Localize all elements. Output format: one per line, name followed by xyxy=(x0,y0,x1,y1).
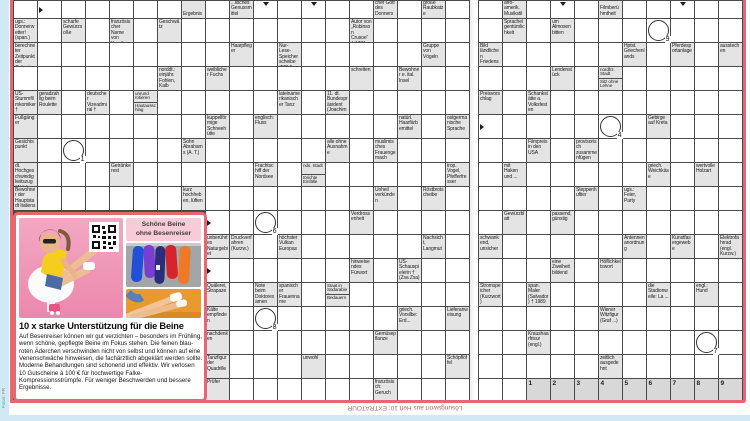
answer-cell[interactable] xyxy=(422,355,445,378)
answer-cell[interactable] xyxy=(527,259,550,282)
answer-cell[interactable] xyxy=(302,259,325,282)
answer-cell[interactable] xyxy=(647,187,670,210)
answer-cell[interactable] xyxy=(374,283,397,306)
answer-cell[interactable] xyxy=(446,67,469,90)
answer-cell[interactable] xyxy=(398,43,421,66)
answer-cell[interactable] xyxy=(254,19,277,42)
answer-cell[interactable] xyxy=(422,259,445,282)
answer-cell[interactable] xyxy=(374,307,397,330)
answer-cell[interactable] xyxy=(278,355,301,378)
answer-cell[interactable] xyxy=(671,331,694,354)
answer-cell[interactable] xyxy=(278,211,301,234)
answer-cell[interactable] xyxy=(446,331,469,354)
answer-cell[interactable] xyxy=(551,187,574,210)
answer-cell[interactable] xyxy=(695,1,718,18)
answer-cell[interactable] xyxy=(479,115,502,138)
answer-cell[interactable] xyxy=(695,259,718,282)
answer-cell[interactable] xyxy=(158,163,181,186)
answer-cell[interactable] xyxy=(695,211,718,234)
answer-cell[interactable] xyxy=(350,163,373,186)
answer-cell[interactable] xyxy=(623,331,646,354)
answer-cell[interactable] xyxy=(551,43,574,66)
answer-cell[interactable] xyxy=(719,67,742,90)
answer-cell[interactable] xyxy=(647,259,670,282)
answer-cell[interactable] xyxy=(527,115,550,138)
solution-letter-cell[interactable]: 9 xyxy=(719,379,742,402)
answer-cell[interactable] xyxy=(302,307,325,330)
answer-cell[interactable]: 1 xyxy=(62,139,85,162)
answer-cell[interactable] xyxy=(374,259,397,282)
answer-cell[interactable] xyxy=(278,67,301,90)
answer-cell[interactable] xyxy=(719,115,742,138)
answer-cell[interactable] xyxy=(479,163,502,186)
answer-cell[interactable] xyxy=(446,379,469,402)
answer-cell[interactable] xyxy=(623,163,646,186)
answer-cell[interactable] xyxy=(695,355,718,378)
answer-cell[interactable] xyxy=(446,1,469,18)
answer-cell[interactable] xyxy=(86,163,109,186)
answer-cell[interactable] xyxy=(230,19,253,42)
answer-cell[interactable] xyxy=(527,235,550,258)
answer-cell[interactable] xyxy=(599,331,622,354)
answer-cell[interactable] xyxy=(374,19,397,42)
answer-cell[interactable] xyxy=(278,331,301,354)
answer-cell[interactable] xyxy=(719,19,742,42)
answer-cell[interactable] xyxy=(182,19,205,42)
answer-cell[interactable] xyxy=(326,355,349,378)
answer-cell[interactable] xyxy=(398,235,421,258)
answer-cell[interactable] xyxy=(158,139,181,162)
answer-cell[interactable] xyxy=(446,211,469,234)
answer-cell[interactable] xyxy=(254,139,277,162)
answer-cell[interactable] xyxy=(278,139,301,162)
answer-cell[interactable] xyxy=(623,307,646,330)
solution-letter-cell[interactable]: 7 xyxy=(671,379,694,402)
answer-cell[interactable] xyxy=(134,1,157,18)
answer-cell[interactable] xyxy=(254,355,277,378)
answer-cell[interactable] xyxy=(623,1,646,18)
answer-cell[interactable] xyxy=(599,43,622,66)
answer-cell[interactable] xyxy=(551,139,574,162)
answer-cell[interactable] xyxy=(599,139,622,162)
answer-cell[interactable] xyxy=(398,331,421,354)
answer-cell[interactable] xyxy=(86,187,109,210)
answer-cell[interactable] xyxy=(575,331,598,354)
answer-cell[interactable] xyxy=(302,115,325,138)
answer-cell[interactable] xyxy=(254,331,277,354)
answer-cell[interactable] xyxy=(719,283,742,306)
answer-cell[interactable] xyxy=(719,139,742,162)
answer-cell[interactable] xyxy=(62,187,85,210)
answer-cell[interactable] xyxy=(647,235,670,258)
answer-cell[interactable] xyxy=(479,67,502,90)
answer-cell[interactable] xyxy=(575,307,598,330)
answer-cell[interactable] xyxy=(86,67,109,90)
answer-cell[interactable] xyxy=(551,331,574,354)
answer-cell[interactable] xyxy=(350,139,373,162)
answer-cell[interactable] xyxy=(398,355,421,378)
answer-cell[interactable] xyxy=(230,307,253,330)
answer-cell[interactable] xyxy=(158,43,181,66)
answer-cell[interactable] xyxy=(182,91,205,114)
answer-cell[interactable] xyxy=(110,67,133,90)
answer-cell[interactable] xyxy=(623,19,646,42)
answer-cell[interactable] xyxy=(695,139,718,162)
answer-cell[interactable] xyxy=(182,43,205,66)
answer-cell[interactable] xyxy=(134,139,157,162)
answer-cell[interactable] xyxy=(647,91,670,114)
answer-cell[interactable] xyxy=(623,139,646,162)
answer-cell[interactable] xyxy=(719,163,742,186)
answer-cell[interactable] xyxy=(671,307,694,330)
answer-cell[interactable] xyxy=(254,187,277,210)
answer-cell[interactable] xyxy=(398,163,421,186)
answer-cell[interactable] xyxy=(671,67,694,90)
answer-cell[interactable] xyxy=(62,67,85,90)
answer-cell[interactable] xyxy=(230,67,253,90)
answer-cell[interactable] xyxy=(599,91,622,114)
answer-cell[interactable] xyxy=(110,187,133,210)
answer-cell[interactable] xyxy=(398,379,421,402)
answer-cell[interactable] xyxy=(374,211,397,234)
answer-cell[interactable] xyxy=(302,67,325,90)
answer-cell[interactable] xyxy=(479,211,502,234)
answer-cell[interactable] xyxy=(422,211,445,234)
answer-cell[interactable] xyxy=(671,355,694,378)
answer-cell[interactable] xyxy=(158,91,181,114)
answer-cell[interactable] xyxy=(86,43,109,66)
answer-cell[interactable] xyxy=(422,283,445,306)
answer-cell[interactable] xyxy=(575,91,598,114)
answer-cell[interactable] xyxy=(302,19,325,42)
answer-cell[interactable] xyxy=(110,115,133,138)
answer-cell[interactable] xyxy=(599,163,622,186)
answer-cell[interactable] xyxy=(551,163,574,186)
answer-cell[interactable] xyxy=(206,91,229,114)
answer-cell[interactable] xyxy=(503,67,526,90)
answer-cell[interactable] xyxy=(671,187,694,210)
answer-cell[interactable] xyxy=(230,355,253,378)
answer-cell[interactable] xyxy=(527,163,550,186)
answer-cell[interactable] xyxy=(254,91,277,114)
answer-cell[interactable] xyxy=(230,331,253,354)
answer-cell[interactable] xyxy=(398,187,421,210)
answer-cell[interactable] xyxy=(422,115,445,138)
answer-cell[interactable] xyxy=(671,283,694,306)
answer-cell[interactable] xyxy=(230,115,253,138)
answer-cell[interactable] xyxy=(374,67,397,90)
answer-cell[interactable] xyxy=(14,67,37,90)
answer-cell[interactable] xyxy=(206,43,229,66)
answer-cell[interactable] xyxy=(350,91,373,114)
answer-cell[interactable] xyxy=(326,43,349,66)
answer-cell[interactable] xyxy=(302,211,325,234)
answer-cell[interactable] xyxy=(623,259,646,282)
answer-cell[interactable] xyxy=(719,187,742,210)
answer-cell[interactable] xyxy=(446,283,469,306)
answer-cell[interactable] xyxy=(326,163,349,186)
answer-cell[interactable] xyxy=(422,379,445,402)
answer-cell[interactable]: 8 xyxy=(254,307,277,330)
answer-cell[interactable] xyxy=(350,283,373,306)
answer-cell[interactable] xyxy=(326,187,349,210)
answer-cell[interactable] xyxy=(230,283,253,306)
answer-cell[interactable] xyxy=(503,355,526,378)
answer-cell[interactable] xyxy=(14,1,37,18)
answer-cell[interactable] xyxy=(551,1,574,18)
answer-cell[interactable] xyxy=(503,379,526,402)
answer-cell[interactable] xyxy=(446,259,469,282)
answer-cell[interactable] xyxy=(230,187,253,210)
answer-cell[interactable] xyxy=(575,211,598,234)
answer-cell[interactable] xyxy=(575,115,598,138)
answer-cell[interactable] xyxy=(134,19,157,42)
answer-cell[interactable] xyxy=(302,1,325,18)
answer-cell[interactable] xyxy=(503,43,526,66)
answer-cell[interactable] xyxy=(695,307,718,330)
answer-cell[interactable] xyxy=(134,43,157,66)
answer-cell[interactable] xyxy=(350,379,373,402)
answer-cell[interactable] xyxy=(326,331,349,354)
answer-cell[interactable] xyxy=(62,163,85,186)
answer-cell[interactable] xyxy=(647,67,670,90)
answer-cell[interactable] xyxy=(446,91,469,114)
solution-letter-cell[interactable]: 1 xyxy=(527,379,550,402)
answer-cell[interactable] xyxy=(302,187,325,210)
answer-cell[interactable] xyxy=(134,67,157,90)
answer-cell[interactable] xyxy=(623,355,646,378)
answer-cell[interactable] xyxy=(671,91,694,114)
answer-cell[interactable] xyxy=(671,259,694,282)
answer-cell[interactable] xyxy=(671,1,694,18)
answer-cell[interactable] xyxy=(695,19,718,42)
answer-cell[interactable] xyxy=(350,355,373,378)
answer-cell[interactable] xyxy=(38,187,61,210)
answer-cell[interactable] xyxy=(134,115,157,138)
answer-cell[interactable] xyxy=(326,67,349,90)
answer-cell[interactable] xyxy=(230,259,253,282)
answer-cell[interactable] xyxy=(278,115,301,138)
answer-cell[interactable] xyxy=(350,43,373,66)
answer-cell[interactable] xyxy=(551,355,574,378)
solution-letter-cell[interactable]: 4 xyxy=(599,379,622,402)
answer-cell[interactable] xyxy=(158,115,181,138)
answer-cell[interactable] xyxy=(278,163,301,186)
answer-cell[interactable] xyxy=(110,139,133,162)
answer-cell[interactable] xyxy=(422,139,445,162)
answer-cell[interactable] xyxy=(623,115,646,138)
answer-cell[interactable] xyxy=(374,235,397,258)
answer-cell[interactable] xyxy=(599,187,622,210)
answer-cell[interactable] xyxy=(599,283,622,306)
answer-cell[interactable] xyxy=(647,331,670,354)
answer-cell[interactable]: 7 xyxy=(695,331,718,354)
answer-cell[interactable] xyxy=(695,43,718,66)
solution-letter-cell[interactable]: 5 xyxy=(623,379,646,402)
answer-cell[interactable] xyxy=(350,331,373,354)
answer-cell[interactable] xyxy=(575,355,598,378)
answer-cell[interactable] xyxy=(62,1,85,18)
answer-cell[interactable] xyxy=(182,115,205,138)
answer-cell[interactable] xyxy=(374,115,397,138)
answer-cell[interactable] xyxy=(503,91,526,114)
answer-cell[interactable] xyxy=(695,187,718,210)
answer-cell[interactable] xyxy=(326,259,349,282)
answer-cell[interactable] xyxy=(527,211,550,234)
answer-cell[interactable] xyxy=(503,235,526,258)
answer-cell[interactable] xyxy=(719,259,742,282)
answer-cell[interactable] xyxy=(599,235,622,258)
answer-cell[interactable] xyxy=(302,283,325,306)
answer-cell[interactable] xyxy=(527,187,550,210)
answer-cell[interactable] xyxy=(446,19,469,42)
answer-cell[interactable] xyxy=(398,1,421,18)
answer-cell[interactable] xyxy=(479,355,502,378)
answer-cell[interactable] xyxy=(527,67,550,90)
answer-cell[interactable] xyxy=(110,91,133,114)
answer-cell[interactable] xyxy=(398,211,421,234)
answer-cell[interactable] xyxy=(479,307,502,330)
answer-cell[interactable] xyxy=(719,355,742,378)
answer-cell[interactable] xyxy=(326,235,349,258)
answer-cell[interactable] xyxy=(599,19,622,42)
answer-cell[interactable] xyxy=(38,43,61,66)
answer-cell[interactable] xyxy=(575,1,598,18)
answer-cell[interactable] xyxy=(719,211,742,234)
answer-cell[interactable] xyxy=(254,379,277,402)
answer-cell[interactable] xyxy=(254,235,277,258)
answer-cell[interactable] xyxy=(326,115,349,138)
answer-cell[interactable] xyxy=(182,163,205,186)
answer-cell[interactable] xyxy=(86,19,109,42)
answer-cell[interactable] xyxy=(374,355,397,378)
answer-cell[interactable] xyxy=(350,307,373,330)
answer-cell[interactable] xyxy=(647,43,670,66)
answer-cell[interactable] xyxy=(719,307,742,330)
answer-cell[interactable] xyxy=(278,307,301,330)
answer-cell[interactable] xyxy=(479,1,502,18)
answer-cell[interactable] xyxy=(551,283,574,306)
answer-cell[interactable] xyxy=(302,43,325,66)
answer-cell[interactable] xyxy=(422,67,445,90)
answer-cell[interactable] xyxy=(551,115,574,138)
answer-cell[interactable] xyxy=(623,91,646,114)
answer-cell[interactable] xyxy=(647,1,670,18)
answer-cell[interactable] xyxy=(206,19,229,42)
answer-cell[interactable] xyxy=(695,91,718,114)
answer-cell[interactable] xyxy=(278,259,301,282)
answer-cell[interactable] xyxy=(671,115,694,138)
answer-cell[interactable] xyxy=(158,1,181,18)
answer-cell[interactable] xyxy=(350,1,373,18)
answer-cell[interactable] xyxy=(575,43,598,66)
answer-cell[interactable] xyxy=(479,19,502,42)
answer-cell[interactable] xyxy=(254,67,277,90)
answer-cell[interactable] xyxy=(503,259,526,282)
answer-cell[interactable] xyxy=(503,331,526,354)
answer-cell[interactable] xyxy=(623,67,646,90)
answer-cell[interactable] xyxy=(38,1,61,18)
answer-cell[interactable] xyxy=(422,307,445,330)
answer-cell[interactable] xyxy=(503,115,526,138)
answer-cell[interactable] xyxy=(527,43,550,66)
answer-cell[interactable] xyxy=(230,139,253,162)
answer-cell[interactable] xyxy=(278,1,301,18)
answer-cell[interactable]: 6 xyxy=(254,211,277,234)
answer-cell[interactable] xyxy=(206,211,229,234)
answer-cell[interactable] xyxy=(254,43,277,66)
solution-letter-cell[interactable]: 8 xyxy=(695,379,718,402)
answer-cell[interactable] xyxy=(446,235,469,258)
answer-cell[interactable] xyxy=(374,163,397,186)
answer-cell[interactable] xyxy=(350,115,373,138)
answer-cell[interactable] xyxy=(575,283,598,306)
answer-cell[interactable] xyxy=(623,283,646,306)
answer-cell[interactable] xyxy=(479,331,502,354)
answer-cell[interactable] xyxy=(62,43,85,66)
answer-cell[interactable] xyxy=(398,139,421,162)
answer-cell[interactable] xyxy=(278,379,301,402)
answer-cell[interactable] xyxy=(38,115,61,138)
answer-cell[interactable] xyxy=(575,259,598,282)
answer-cell[interactable] xyxy=(38,67,61,90)
answer-cell[interactable] xyxy=(62,115,85,138)
answer-cell[interactable] xyxy=(158,187,181,210)
answer-cell[interactable] xyxy=(230,211,253,234)
answer-cell[interactable] xyxy=(326,211,349,234)
answer-cell[interactable] xyxy=(206,163,229,186)
answer-cell[interactable] xyxy=(62,91,85,114)
answer-cell[interactable] xyxy=(671,139,694,162)
answer-cell[interactable] xyxy=(422,19,445,42)
answer-cell[interactable]: 9 xyxy=(647,19,670,42)
answer-cell[interactable] xyxy=(575,235,598,258)
answer-cell[interactable] xyxy=(479,259,502,282)
answer-cell[interactable] xyxy=(719,91,742,114)
answer-cell[interactable] xyxy=(374,91,397,114)
answer-cell[interactable] xyxy=(695,115,718,138)
answer-cell[interactable] xyxy=(86,1,109,18)
answer-cell[interactable] xyxy=(110,43,133,66)
answer-cell[interactable] xyxy=(302,91,325,114)
solution-letter-cell[interactable]: 6 xyxy=(647,379,670,402)
answer-cell[interactable] xyxy=(206,259,229,282)
answer-cell[interactable] xyxy=(254,259,277,282)
answer-cell[interactable] xyxy=(398,283,421,306)
answer-cell[interactable] xyxy=(719,1,742,18)
answer-cell[interactable] xyxy=(302,331,325,354)
answer-cell[interactable]: 4 xyxy=(599,115,622,138)
answer-cell[interactable] xyxy=(110,1,133,18)
answer-cell[interactable] xyxy=(527,1,550,18)
answer-cell[interactable] xyxy=(503,283,526,306)
answer-cell[interactable] xyxy=(278,19,301,42)
answer-cell[interactable] xyxy=(647,139,670,162)
answer-cell[interactable] xyxy=(326,19,349,42)
answer-cell[interactable] xyxy=(230,163,253,186)
answer-cell[interactable] xyxy=(575,163,598,186)
solution-letter-cell[interactable]: 2 xyxy=(551,379,574,402)
answer-cell[interactable] xyxy=(86,115,109,138)
answer-cell[interactable] xyxy=(326,307,349,330)
answer-cell[interactable] xyxy=(230,91,253,114)
answer-cell[interactable] xyxy=(398,19,421,42)
answer-cell[interactable] xyxy=(350,187,373,210)
answer-cell[interactable] xyxy=(503,307,526,330)
answer-cell[interactable] xyxy=(671,211,694,234)
answer-cell[interactable] xyxy=(527,355,550,378)
answer-cell[interactable] xyxy=(422,331,445,354)
